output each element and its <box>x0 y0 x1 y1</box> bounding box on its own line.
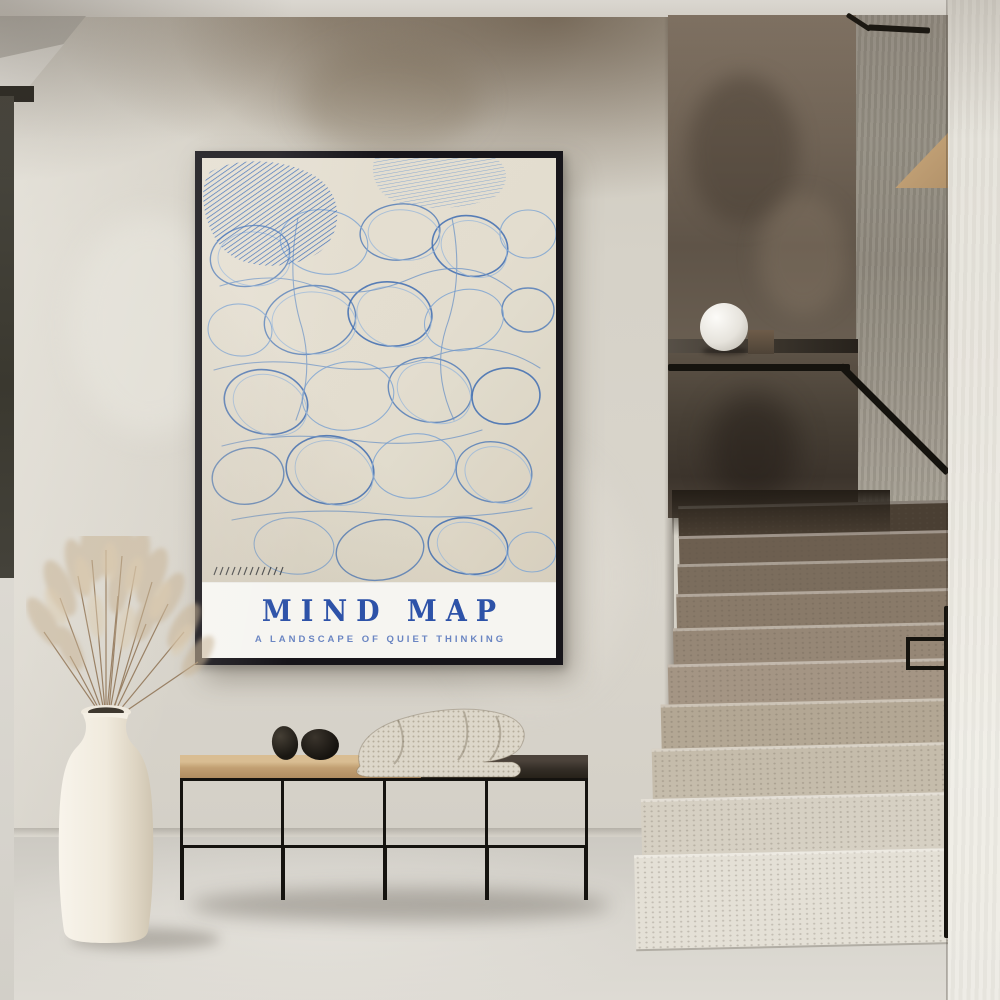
poster-title: MIND MAP <box>202 582 556 629</box>
wall-texture-blotch <box>758 195 848 315</box>
doorway-frame <box>0 96 14 578</box>
wall-texture-blotch <box>708 393 798 503</box>
stair-step <box>634 848 960 951</box>
bench-frame-bar <box>281 781 284 845</box>
bench-leg <box>281 845 285 900</box>
bench-leg <box>180 845 184 900</box>
bench-leg <box>383 845 387 900</box>
framed-poster: MIND MAP A LANDSCAPE OF QUIET THINKING <box>195 151 563 665</box>
waffle-blanket <box>346 704 538 782</box>
vase-with-pampas-grass <box>26 536 241 960</box>
stairwell-upper-wall <box>668 15 858 355</box>
right-wall <box>948 0 1000 1000</box>
bench-leg <box>485 845 489 900</box>
poster-caption-band: MIND MAP A LANDSCAPE OF QUIET THINKING <box>202 582 556 658</box>
sphere-lamp <box>700 303 748 351</box>
interior-scene: MIND MAP A LANDSCAPE OF QUIET THINKING <box>0 0 1000 1000</box>
wall-texture-blotch <box>300 45 480 155</box>
bench-frame-bar <box>383 781 386 845</box>
staircase <box>600 495 960 963</box>
stair-step <box>641 792 958 857</box>
white-vase <box>59 705 154 943</box>
doorway-floor <box>0 578 14 1000</box>
poster-line-art <box>202 158 556 582</box>
handrail <box>668 364 850 371</box>
bench-metal-frame <box>180 778 588 848</box>
bench-leg <box>584 845 588 900</box>
grass-plumes <box>26 536 220 681</box>
bench-frame-bar <box>485 781 488 845</box>
stair-block <box>748 330 774 354</box>
stair-shadow <box>672 490 890 536</box>
bench-shadow <box>190 888 610 922</box>
